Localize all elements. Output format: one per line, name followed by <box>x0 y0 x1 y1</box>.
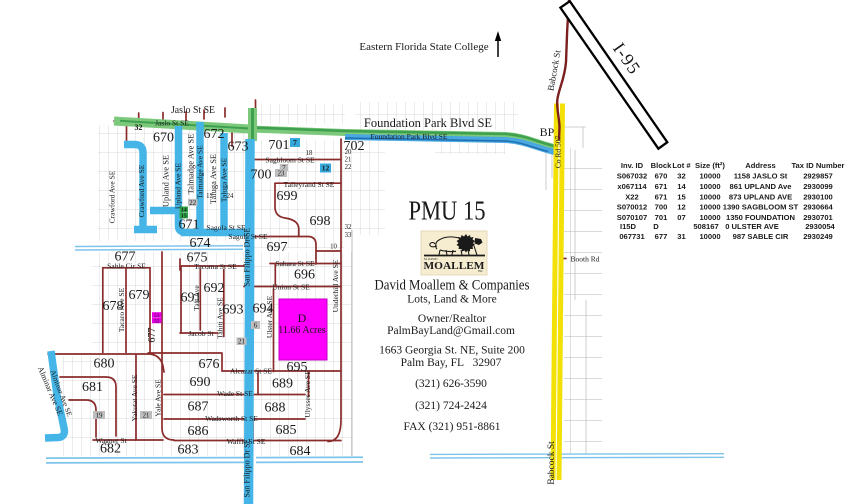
svg-text:7: 7 <box>293 138 297 147</box>
svg-text:22: 22 <box>189 200 196 207</box>
svg-text:679: 679 <box>129 288 150 303</box>
svg-text:10000: 10000 <box>699 182 720 191</box>
svg-text:Crawford Ave SE: Crawford Ave SE <box>108 170 117 223</box>
svg-text:32: 32 <box>135 123 143 132</box>
svg-text:Sable Cir SE: Sable Cir SE <box>107 262 146 271</box>
svg-text:(321) 626-3590: (321) 626-3590 <box>415 378 487 390</box>
svg-text:Alcazar St SE: Alcazar St SE <box>230 367 272 376</box>
svg-text:Size (ft²): Size (ft²) <box>695 161 725 170</box>
svg-text:Yakutat Ave SE: Yakutat Ave SE <box>130 374 139 421</box>
svg-text:Wagner St: Wagner St <box>95 436 127 445</box>
svg-text:22: 22 <box>345 164 352 171</box>
svg-text:2930054: 2930054 <box>805 222 835 231</box>
svg-text:Yale Ave SE: Yale Ave SE <box>154 379 163 417</box>
svg-text:Sagola St SE: Sagola St SE <box>228 232 268 241</box>
svg-text:Talleyrand St SE: Talleyrand St SE <box>284 180 335 189</box>
svg-text:Wade St SE: Wade St SE <box>217 389 253 398</box>
svg-text:701: 701 <box>655 213 668 222</box>
svg-text:07: 07 <box>677 213 685 222</box>
svg-text:10000: 10000 <box>699 213 720 222</box>
svg-text:52: 52 <box>154 318 160 324</box>
svg-text:32: 32 <box>345 224 352 231</box>
svg-text:508167: 508167 <box>693 222 718 231</box>
svg-text:671: 671 <box>655 193 668 202</box>
svg-text:S070012: S070012 <box>617 203 647 212</box>
svg-text:Booth Rd: Booth Rd <box>571 255 600 264</box>
svg-text:693: 693 <box>223 303 244 318</box>
svg-text:690: 690 <box>190 375 211 390</box>
svg-text:11.66 Acres: 11.66 Acres <box>278 325 326 336</box>
svg-text:Jaslo St SE: Jaslo St SE <box>171 105 215 116</box>
svg-text:699: 699 <box>277 189 298 204</box>
svg-text:32: 32 <box>677 172 685 181</box>
svg-text:Taluga Ave SE: Taluga Ave SE <box>208 154 218 204</box>
svg-text:687: 687 <box>188 400 209 415</box>
svg-text:Crawford Ave SE: Crawford Ave SE <box>137 164 146 217</box>
svg-text:683: 683 <box>178 443 199 458</box>
svg-text:Lots, Land & More: Lots, Land & More <box>407 294 496 306</box>
svg-text:2930701: 2930701 <box>803 213 833 222</box>
svg-text:BP: BP <box>540 125 555 139</box>
svg-text:San Filippo Dr SE: San Filippo Dr SE <box>243 438 252 497</box>
svg-text:702: 702 <box>344 139 365 154</box>
svg-text:10000: 10000 <box>699 203 720 212</box>
svg-text:700: 700 <box>251 168 272 183</box>
svg-text:861 UPLAND Ave: 861 UPLAND Ave <box>730 182 792 191</box>
svg-text:067731: 067731 <box>619 232 645 241</box>
svg-text:672: 672 <box>204 127 225 142</box>
svg-text:1663 Georgia St. NE, Suite 200: 1663 Georgia St. NE, Suite 200 <box>379 345 525 357</box>
svg-text:670: 670 <box>153 131 174 146</box>
svg-text:671: 671 <box>179 218 200 233</box>
svg-text:Foundation Park Blvd SE: Foundation Park Blvd SE <box>371 132 448 141</box>
svg-text:I15D: I15D <box>620 222 637 231</box>
svg-text:1158 JASLO St: 1158 JASLO St <box>734 172 788 181</box>
svg-text:Owner/Realtor: Owner/Realtor <box>418 313 487 325</box>
svg-text:Babcock St: Babcock St <box>547 441 557 485</box>
svg-text:Lot #: Lot # <box>672 161 691 170</box>
svg-text:Jacob St: Jacob St <box>188 329 214 338</box>
svg-text:698: 698 <box>310 214 331 229</box>
svg-text:Foundation Park Blvd SE: Foundation Park Blvd SE <box>364 116 492 130</box>
svg-text:692: 692 <box>204 281 225 296</box>
svg-text:Talmadge Ave SE: Talmadge Ave SE <box>186 134 196 195</box>
svg-text:686: 686 <box>188 424 209 439</box>
svg-text:Union St SE: Union St SE <box>272 283 310 292</box>
svg-text:14: 14 <box>677 182 686 191</box>
svg-text:David Moallem & Companies: David Moallem & Companies <box>375 278 530 294</box>
svg-text:Block: Block <box>651 161 672 170</box>
svg-text:Tacoma St SE: Tacoma St SE <box>194 262 237 271</box>
svg-text:x067114: x067114 <box>617 182 647 191</box>
svg-text:681: 681 <box>82 380 103 395</box>
svg-text:15: 15 <box>677 193 686 202</box>
svg-text:674: 674 <box>190 236 211 251</box>
svg-text:21: 21 <box>238 339 245 346</box>
svg-text:X22: X22 <box>625 193 639 202</box>
svg-text:Taft Ave: Taft Ave <box>192 285 201 311</box>
svg-text:Jaslo St SE: Jaslo St SE <box>155 119 189 128</box>
svg-text:D: D <box>653 222 659 231</box>
svg-text:10000: 10000 <box>699 232 720 241</box>
svg-text:Ulysses Ave SE: Ulysses Ave SE <box>303 370 312 418</box>
svg-text:Sagola St SE: Sagola St SE <box>206 223 246 232</box>
svg-text:677: 677 <box>655 232 668 241</box>
svg-text:FAX (321) 951-8861: FAX (321) 951-8861 <box>404 421 501 433</box>
svg-text:21: 21 <box>345 157 352 164</box>
svg-text:PalmBayLand@Gmail.com: PalmBayLand@Gmail.com <box>387 325 515 337</box>
svg-text:Tax ID Number: Tax ID Number <box>791 161 844 170</box>
svg-text:Ulster Ave SE: Ulster Ave SE <box>265 295 274 338</box>
svg-text:701: 701 <box>269 138 290 153</box>
svg-text:Underhill Ave SE: Underhill Ave SE <box>331 259 340 312</box>
svg-text:689: 689 <box>272 377 293 392</box>
svg-text:2930100: 2930100 <box>803 193 833 202</box>
svg-text:Wadsworth St SE: Wadsworth St SE <box>205 414 258 423</box>
svg-text:676: 676 <box>199 357 220 372</box>
svg-text:23: 23 <box>278 171 285 178</box>
svg-text:PMU 15: PMU 15 <box>409 196 486 226</box>
svg-text:S067032: S067032 <box>617 172 647 181</box>
svg-text:Address: Address <box>745 161 775 170</box>
svg-text:MOALLEM: MOALLEM <box>424 261 485 272</box>
svg-text:688: 688 <box>265 401 286 416</box>
svg-text:671: 671 <box>655 182 668 191</box>
svg-text:31: 31 <box>677 232 686 241</box>
svg-text:Sagbloom St SE: Sagbloom St SE <box>265 156 315 165</box>
svg-text:INC: INC <box>478 269 483 273</box>
svg-text:1390 SAGBLOOM ST: 1390 SAGBLOOM ST <box>723 203 799 212</box>
svg-text:1350 FOUNDATION: 1350 FOUNDATION <box>726 213 795 222</box>
svg-text:2930249: 2930249 <box>803 232 833 241</box>
svg-text:Inv. ID: Inv. ID <box>621 161 644 170</box>
svg-text:Upland Ave SE: Upland Ave SE <box>161 155 171 207</box>
svg-text:670: 670 <box>655 172 668 181</box>
svg-text:Tahiti Ave SE: Tahiti Ave SE <box>216 297 225 339</box>
svg-text:873 UPLAND AVE: 873 UPLAND AVE <box>729 193 792 202</box>
svg-text:696: 696 <box>294 268 315 283</box>
svg-text:10: 10 <box>330 244 337 251</box>
svg-text:677: 677 <box>147 328 158 343</box>
svg-text:6: 6 <box>254 323 258 330</box>
svg-text:Tacaro Ave SE: Tacaro Ave SE <box>117 287 126 332</box>
svg-text:673: 673 <box>228 140 249 155</box>
svg-text:2929857: 2929857 <box>803 172 833 181</box>
svg-text:Talmadge Ave SE: Talmadge Ave SE <box>196 145 205 199</box>
svg-text:Co Rd 507: Co Rd 507 <box>554 136 563 169</box>
svg-text:19: 19 <box>96 413 103 420</box>
svg-text:697: 697 <box>267 240 288 255</box>
svg-text:2930664: 2930664 <box>803 203 833 212</box>
svg-text:S070107: S070107 <box>617 213 647 222</box>
svg-text:684: 684 <box>290 444 311 459</box>
svg-text:2930099: 2930099 <box>803 182 833 191</box>
svg-text:987 SABLE CIR: 987 SABLE CIR <box>733 232 789 241</box>
svg-text:33: 33 <box>345 232 352 239</box>
svg-text:21: 21 <box>143 413 150 420</box>
svg-text:Eastern Florida State College: Eastern Florida State College <box>359 41 488 53</box>
svg-text:Taluga Ave SE: Taluga Ave SE <box>220 157 229 202</box>
svg-text:Upland Ave SE: Upland Ave SE <box>174 163 183 210</box>
svg-text:10000: 10000 <box>699 172 720 181</box>
svg-text:685: 685 <box>276 423 297 438</box>
svg-text:700: 700 <box>655 203 668 212</box>
svg-text:12: 12 <box>322 164 330 173</box>
svg-text:12: 12 <box>677 203 685 212</box>
svg-text:0 ULSTER AVE: 0 ULSTER AVE <box>725 222 779 231</box>
svg-text:D: D <box>298 311 307 325</box>
svg-text:(321) 724-2424: (321) 724-2424 <box>415 400 487 412</box>
svg-text:Sahara St SE: Sahara St SE <box>275 259 315 268</box>
svg-text:10000: 10000 <box>699 193 720 202</box>
svg-text:Palm Bay, FL 32907: Palm Bay, FL 32907 <box>401 357 502 369</box>
svg-text:680: 680 <box>94 357 115 372</box>
